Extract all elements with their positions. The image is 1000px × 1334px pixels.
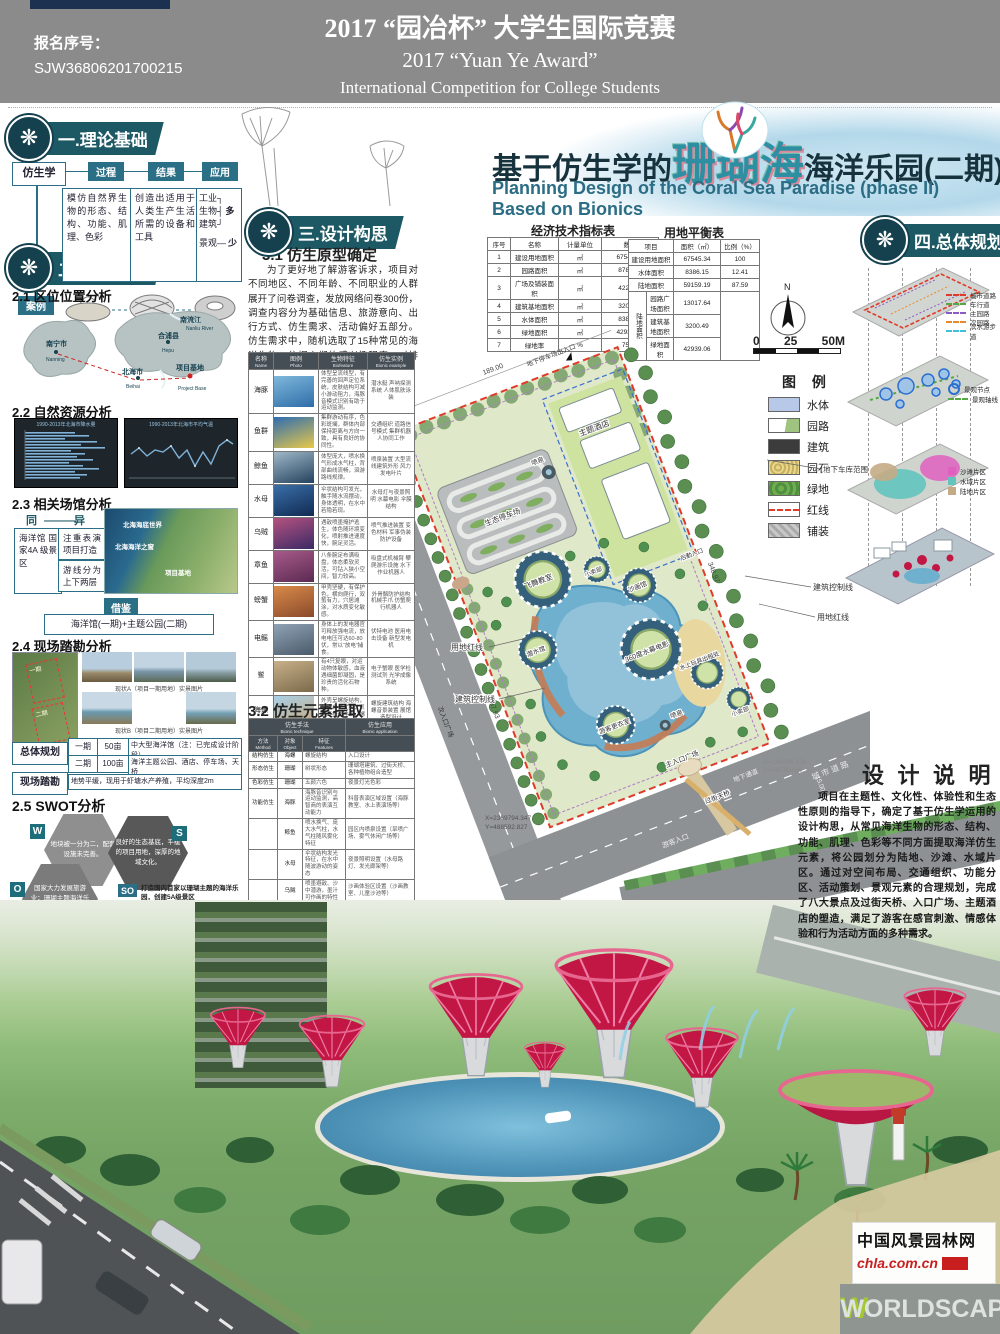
- species-example: 喷泉装置 大型流线建筑外形 风力发电叶片: [368, 451, 415, 484]
- species-photo: [274, 661, 314, 692]
- temperature-chart: 1990-2013年北海市平均气温: [124, 418, 238, 488]
- flow-masterplan-box: 总体规划: [12, 742, 68, 765]
- swot-o-tag: O: [10, 882, 25, 897]
- watermark-url: chla.com.cn: [857, 1255, 938, 1271]
- svg-text:合浦县: 合浦县: [157, 331, 179, 340]
- survey-satellite: 一期 二期: [12, 652, 78, 750]
- svg-text:Nanning: Nanning: [46, 357, 65, 363]
- entry-number-label: 报名序号：: [34, 32, 109, 53]
- venue-tag-project-base: 项目基地: [165, 567, 191, 577]
- species-photo: [274, 452, 314, 483]
- element-feature: 五颜六色: [303, 778, 346, 788]
- econ-name: 水体面积: [511, 313, 559, 326]
- coral-logo: [700, 100, 770, 160]
- element-application: 入口设计: [346, 752, 415, 762]
- survey-photos-phase1: [82, 652, 236, 682]
- svg-text:Y=488750.089: Y=488750.089: [763, 768, 803, 774]
- svg-text:用地红线: 用地红线: [817, 612, 849, 622]
- species-row: 鲎 有4只复眼，对运动物体敏感，血液遇细菌即凝固，是珍贵的活化石物种。 电子蟹眼…: [249, 658, 415, 695]
- flow-phase1: 一期: [68, 738, 98, 756]
- road-legend: 城市道路 车行道 主园路 次园路 滨水游步道: [946, 290, 1000, 335]
- svg-text:建筑控制线: 建筑控制线: [455, 694, 495, 704]
- poster-header: 报名序号： SJW36806201700215 2017 “园冶杯” 大学生国际…: [0, 0, 1000, 103]
- econ-no: 3: [488, 277, 511, 300]
- land-row: 陆地面积59159.1987.59: [629, 279, 760, 292]
- survey-photos-phase2: [82, 692, 236, 724]
- species-name: 电鳐: [249, 621, 274, 658]
- element-method: 色彩仿生: [249, 778, 278, 788]
- econ-name: 建筑基地面积: [511, 300, 559, 313]
- species-name: 鱼群: [249, 414, 274, 451]
- element-row: 结构仿生 海螺 螺旋结构 入口设计: [249, 752, 415, 762]
- venues-box-show: 注重表演 项目打造: [58, 528, 106, 560]
- element-object: 海豚: [278, 788, 303, 819]
- svg-text:X=2369794.079: X=2369794.079: [763, 760, 806, 766]
- theory-stage-process: 过程: [88, 162, 124, 181]
- app-architecture: 建筑: [199, 218, 217, 231]
- species-row: 海豚 体型呈流线型，有完善的回声定位系统，皮肤结构可减小游动阻力，海豚音模式识别…: [249, 370, 415, 414]
- theory-stage-apply: 应用: [202, 162, 238, 181]
- watermark-box: 中国风景园林网 chla.com.cn: [852, 1222, 996, 1284]
- element-object: 鲸鱼: [278, 819, 303, 850]
- site-photo: [82, 652, 132, 682]
- zone-legend-label: 陆地片区: [960, 486, 986, 496]
- section-title: 一.理论基础: [42, 122, 164, 155]
- venues-box-route: 游线分为 上下两层: [58, 560, 106, 592]
- species-name: 鲸鱼: [249, 451, 274, 484]
- flow-survey-box: 现场踏勘: [12, 772, 68, 795]
- species-photo: [274, 485, 314, 516]
- heading-swot: 2.5 SWOT分析: [12, 796, 105, 816]
- node-legend: 景观节点 景观轴线: [948, 384, 998, 404]
- road-legend-item: 滨水游步道: [946, 326, 1000, 335]
- app-industry: 工业: [199, 192, 217, 205]
- axis-legend-label: 景观轴线: [972, 394, 998, 404]
- node-icon: [948, 383, 960, 395]
- element-object: 珊瑚: [278, 778, 303, 788]
- element-feature: 树状形态: [303, 761, 346, 778]
- element-row: 形态仿生 珊瑚 树状形态 珊瑚塔建筑、过街天桥、各种植物组合造型: [249, 761, 415, 778]
- element-row: 功能仿生 海豚 海豚音识别与运动监测，高智商的表演互动能力 科普表演区域设置（海…: [249, 788, 415, 819]
- species-name: 鲎: [249, 658, 274, 695]
- axis-legend-item: 景观轴线: [948, 394, 998, 404]
- econ-name: 园路面积: [511, 264, 559, 277]
- species-feature: 伞状结构可发光，触手随水流摆动，身体透明，在水中若隐若现。: [319, 484, 368, 517]
- rainfall-bars: [15, 428, 117, 484]
- site-photo: [134, 652, 184, 682]
- competition-poster: 报名序号： SJW36806201700215 2017 “园冶杯” 大学生国际…: [0, 0, 1000, 1334]
- svg-text:Nanliu River: Nanliu River: [186, 326, 214, 332]
- theory-box-imitate: 模仿自然界生物的形态、结构、功能、肌理、色彩: [62, 188, 132, 282]
- theory-box-apps: 工业┐ 生物┤多 建筑┘ 景观—少: [196, 188, 242, 282]
- theory-box-create: 创造出适用于人类生产生活所需的设备和工具: [130, 188, 200, 282]
- flow-phase2: 二期: [68, 755, 98, 773]
- site-photo: [134, 692, 184, 724]
- species-name: 螃蟹: [249, 583, 274, 620]
- element-header-sub: 方法Method 对象Object 特征Features: [249, 736, 415, 752]
- design-note-title: 设 计 说 明: [862, 758, 995, 790]
- element-method: 形态仿生: [249, 761, 278, 778]
- svg-text:Hepu: Hepu: [162, 348, 174, 354]
- species-header-row: 名称Name 图例Photo 生物特征Biofeature 仿生实例Bionic…: [249, 353, 415, 370]
- land-row: 建设用地面积67545.34100: [629, 253, 760, 266]
- svg-text:项目基地: 项目基地: [176, 363, 204, 372]
- swot-s-tag: S: [172, 826, 187, 841]
- svg-text:X=2369794.347: X=2369794.347: [485, 815, 531, 822]
- element-object: 水母: [278, 849, 303, 880]
- species-feature: 体型呈流线型，有完善的回声定位系统，皮肤结构可减小游动阻力，海豚音模式识别有助于…: [319, 370, 368, 414]
- temperature-chart-title: 1990-2013年北海市平均气温: [125, 421, 237, 428]
- watermark-red-badge: [942, 1257, 968, 1270]
- temperature-line: [125, 428, 237, 484]
- road-legend-dash: [946, 312, 966, 314]
- element-feature: 螺旋结构: [303, 752, 346, 762]
- element-feature: 海豚音识别与运动监测，高智商的表演互动能力: [303, 788, 346, 819]
- theory-subject-box: 仿生学: [12, 162, 66, 186]
- road-legend-label: 滨水游步道: [970, 321, 1000, 341]
- phase1-tag: 一期: [29, 664, 43, 675]
- element-row: 水母 伞状结构发光特征，在水中随波游动的姿态 夜景照明设置（水母路灯、发光廊架等…: [249, 849, 415, 880]
- species-photo: [274, 518, 314, 549]
- species-feature: 有4只复眼，对运动物体敏感，血液遇细菌即凝固，是珍贵的活化石物种。: [319, 658, 368, 695]
- node-legend-label: 景观节点: [964, 384, 990, 394]
- node-legend-item: 景观节点: [948, 384, 998, 394]
- element-application: 园区内喷泉设置（旱喷广场、雾气休闲广场等）: [346, 819, 415, 850]
- phase2-tag: 二期: [35, 708, 49, 719]
- land-row: 水体面积8386.1512.41: [629, 266, 760, 279]
- venues-same-label: 同: [26, 512, 37, 528]
- road-legend-dash: [946, 303, 966, 305]
- worldscape-text: WORLDSCAPE: [840, 1295, 1000, 1324]
- econ-no: 5: [488, 313, 511, 326]
- app-landscape: 景观: [199, 237, 217, 250]
- species-photo: [274, 624, 314, 655]
- flow-area2: 100亩: [97, 755, 129, 773]
- survey-caption2: 现状B（项目二期用地）实景图片: [82, 726, 236, 735]
- econ-unit: ㎡: [559, 264, 602, 277]
- species-name: 章鱼: [249, 550, 274, 583]
- element-feature: 伞状结构发光特征，在水中随波游动的姿态: [303, 849, 346, 880]
- species-example: 喷气推进装置 变色材料 军事伪装防护设备: [368, 517, 415, 550]
- species-example: 电子蟹眼 医学检测试剂 光学成像系统: [368, 658, 415, 695]
- econ-unit: ㎡: [559, 277, 602, 300]
- species-example: 水母灯与夜景照明 水幕电影 伞膜结构: [368, 484, 415, 517]
- zone-legend-item: 陆地片区: [948, 486, 986, 496]
- species-example: 吸盘式机械臂 攀爬游乐设施 水下作业机器人: [368, 550, 415, 583]
- worldscape-strip: W WORLDSCAPE: [840, 1284, 1000, 1334]
- zone-swatch: [948, 467, 956, 475]
- section-badge-theory: ❋ 一.理论基础: [6, 122, 196, 152]
- app-less: 少: [228, 237, 237, 250]
- element-feature: 喷水换气、庞大水气柱，水气柱随风雾化特征: [303, 819, 346, 850]
- section-logo-icon: ❋: [862, 217, 908, 263]
- species-row: 乌贼 遇敌喷墨掩护逃生，体色随环境变化，喷射推进速度快，腕足灵活。 喷气推进装置…: [249, 517, 415, 550]
- species-photo: [274, 586, 314, 617]
- svg-text:南宁市: 南宁市: [46, 339, 67, 348]
- element-method: 结构仿生: [249, 752, 278, 762]
- zone-legend-item: 水域片区: [948, 476, 986, 486]
- svg-text:南流江: 南流江: [180, 315, 201, 324]
- element-application: 珊瑚塔建筑、过街天桥、各种植物组合造型: [346, 761, 415, 778]
- econ-unit: ㎡: [559, 251, 602, 264]
- section-logo-icon: ❋: [246, 209, 292, 255]
- element-object: 海螺: [278, 752, 303, 762]
- road-legend-dash: [946, 330, 966, 332]
- svg-text:Y=488592.827: Y=488592.827: [485, 824, 528, 831]
- road-legend-dash: [946, 321, 966, 323]
- theory-stage-result: 结果: [148, 162, 184, 181]
- species-example: 交通组织 道路信号模式 集群机器人协同工作: [368, 414, 415, 451]
- species-table: 名称Name 图例Photo 生物特征Biofeature 仿生实例Bionic…: [248, 352, 415, 729]
- app-more: 多: [225, 205, 234, 218]
- section-title: 四.总体规划: [898, 224, 1000, 257]
- svg-text:Project Base: Project Base: [178, 386, 207, 392]
- rainfall-chart-title: 1990-2013年北海市降水量: [15, 421, 117, 428]
- species-feature: 集群游动有序，色彩斑斓，群体内部保持距离与方向一致，具有良好的协同性。: [319, 414, 368, 451]
- road-legend-dash: [946, 294, 966, 296]
- phase1-boundary: 一期: [25, 658, 65, 704]
- main-title-en: Planning Design of the Coral Sea Paradis…: [492, 178, 962, 220]
- element-object: 珊瑚: [278, 761, 303, 778]
- supertree-sketch: [240, 106, 470, 216]
- venues-diff-label: 异: [74, 512, 85, 528]
- econ-name: 建设用地面积: [511, 251, 559, 264]
- econ-no: 2: [488, 264, 511, 277]
- land-subrow: 陆地面积 园路广场面积13017.64: [629, 292, 760, 315]
- species-feature: 遇敌喷墨掩护逃生，体色随环境变化，喷射推进速度快，腕足灵活。: [319, 517, 368, 550]
- header-title-cn: 2017 “园冶杯” 大学生国际竞赛: [200, 8, 800, 45]
- svg-text:189.00: 189.00: [482, 363, 505, 377]
- species-name: 海豚: [249, 370, 274, 414]
- species-name: 乌贼: [249, 517, 274, 550]
- econ-name: 广场及铺装面积: [511, 277, 559, 300]
- location-maps: 南宁市 Nanning 南流江 Nanliu River 合浦县 Hepu 北海…: [10, 300, 238, 400]
- species-photo: [274, 417, 314, 448]
- species-example: 伏特电池 医用电击设备 新型发电机: [368, 621, 415, 658]
- section-badge-concept: ❋ 三.设计构思: [246, 216, 436, 246]
- axon-layer-render: [838, 518, 998, 610]
- species-row: 螃蟹 甲壳坚硬，有保护色，横向爬行，双螯有力，穴居滩涂，对水质变化敏感。 外骨骼…: [249, 583, 415, 620]
- swot-w-tag: W: [30, 824, 45, 839]
- entry-number-value: SJW36806201700215: [34, 60, 182, 77]
- header-title-en: International Competition for College St…: [200, 78, 800, 98]
- watermark-site-name: 中国风景园林网: [857, 1227, 991, 1251]
- element-application: 夜景灯光色彩: [346, 778, 415, 788]
- app-biology: 生物: [199, 205, 217, 218]
- design-note-paragraph: 项目在主题性、文化性、体验性和生态性原则的指导下，确定了基于仿生学运用的设计构思…: [798, 790, 996, 942]
- species-row: 鱼群 集群游动有序，色彩斑斓，群体内部保持距离与方向一致，具有良好的协同性。 交…: [249, 414, 415, 451]
- heading-venues: 2.3 相关场馆分析: [12, 494, 112, 513]
- econ-unit: ㎡: [559, 300, 602, 313]
- svg-text:地下停车场出入口: 地下停车场出入口: [525, 342, 577, 369]
- element-application: 科普表演区域设置（海豚教室、水上表演场等）: [346, 788, 415, 819]
- species-row: 电鳐 身体上的发电器官可释放强电流，放电电压可达60-80伏，常以“放电”捕食。…: [249, 621, 415, 658]
- header-title-award: 2017 “Yuan Ye Award”: [200, 48, 800, 73]
- venue-tag-underwater-world: 北海海底世界: [123, 519, 162, 529]
- flow-area1: 50亩: [97, 738, 129, 756]
- species-row: 章鱼 八条腕足布满吸盘，体态柔软灵活，可钻入狭小空间，智力较高。 吸盘式机械臂 …: [249, 550, 415, 583]
- land-header: 项目面积（㎡）比例（%）: [629, 240, 760, 253]
- svg-text:用地红线: 用地红线: [451, 642, 483, 652]
- svg-text:N: N: [784, 282, 791, 292]
- phase2-boundary: 二期: [31, 702, 70, 746]
- venues-satellite-image: 北海海底世界 北海海洋之窗 项目基地: [104, 508, 238, 594]
- svg-text:北海市: 北海市: [122, 367, 143, 376]
- venue-tag-ocean-window: 北海海洋之窗: [115, 541, 154, 551]
- zone-swatch: [948, 487, 956, 495]
- element-method: 功能仿生: [249, 788, 278, 819]
- site-photo: [186, 652, 236, 682]
- venues-box-same: 海洋馆 国家4A 级景区: [14, 528, 62, 594]
- zone-swatch: [948, 477, 956, 485]
- species-example: 潜水艇 声呐探测系统 人体肌肤泳装: [368, 370, 415, 414]
- element-method: [249, 819, 278, 850]
- species-feature: 八条腕足布满吸盘，体态柔软灵活，可钻入狭小空间，智力较高。: [319, 550, 368, 583]
- econ-unit: ㎡: [559, 313, 602, 326]
- species-feature: 体型庞大，喷水换气形成水气柱，背部曲线流畅，洄游路线规律。: [319, 451, 368, 484]
- species-row: 鲸鱼 体型庞大，喷水换气形成水气柱，背部曲线流畅，洄游路线规律。 喷泉装置 大型…: [249, 451, 415, 484]
- species-feature: 身体上的发电器官可释放强电流，放电电压可达60-80伏，常以“放电”捕食。: [319, 621, 368, 658]
- section-badge-masterplan: ❋ 四.总体规划: [862, 224, 998, 254]
- zone-legend-item: 沙滩片区: [948, 466, 986, 476]
- axis-icon: [948, 398, 968, 400]
- econ-no: 1: [488, 251, 511, 264]
- site-photo: [186, 692, 236, 724]
- zone-legend: 沙滩片区 水域片区 陆地片区: [948, 466, 986, 496]
- species-row: 水母 伞状结构可发光，触手随水流摆动，身体透明，在水中若隐若现。 水母灯与夜景照…: [249, 484, 415, 517]
- section-logo-icon: ❋: [6, 115, 52, 161]
- element-method: [249, 849, 278, 880]
- element-application: 夜景照明设置（水母路灯、发光廊架等）: [346, 849, 415, 880]
- render-overlay: [0, 900, 1000, 1334]
- element-row: 色彩仿生 珊瑚 五颜六色 夜景灯光色彩: [249, 778, 415, 788]
- species-example: 外骨骼防护结构 机械手爪 仿蟹爬行机器人: [368, 583, 415, 620]
- econ-no: 4: [488, 300, 511, 313]
- header-logo-strip: [30, 0, 170, 9]
- species-photo: [274, 551, 314, 582]
- swot-strategy-key: SO: [118, 884, 137, 897]
- species-name: 水母: [249, 484, 274, 517]
- element-header-group: 仿生手法Bionic technique 仿生应用Bionic applicat…: [249, 719, 415, 736]
- rainfall-chart: 1990-2013年北海市降水量: [14, 418, 118, 488]
- species-feature: 甲壳坚硬，有保护色，横向爬行，双螯有力，穴居滩涂，对水质变化敏感。: [319, 583, 368, 620]
- zone-legend-label: 水域片区: [960, 476, 986, 486]
- birdseye-render: 中国风景园林网 chla.com.cn W WORLDSCAPE: [0, 900, 1000, 1334]
- svg-text:Beihai: Beihai: [126, 384, 140, 390]
- flow-survey-desc: 地势平缓，现用于虾塘水产养殖，平均深度2m: [68, 774, 242, 790]
- section-logo-icon: ❋: [6, 245, 52, 291]
- venues-ref-text: 海洋馆(一期)+主题公园(二期): [44, 614, 214, 635]
- element-row: 鲸鱼 喷水换气、庞大水气柱，水气柱随风雾化特征 园区内喷泉设置（旱喷广场、雾气休…: [249, 819, 415, 850]
- zone-legend-label: 沙滩片区: [960, 466, 986, 476]
- site-photo: [82, 692, 132, 724]
- species-photo: [274, 376, 314, 407]
